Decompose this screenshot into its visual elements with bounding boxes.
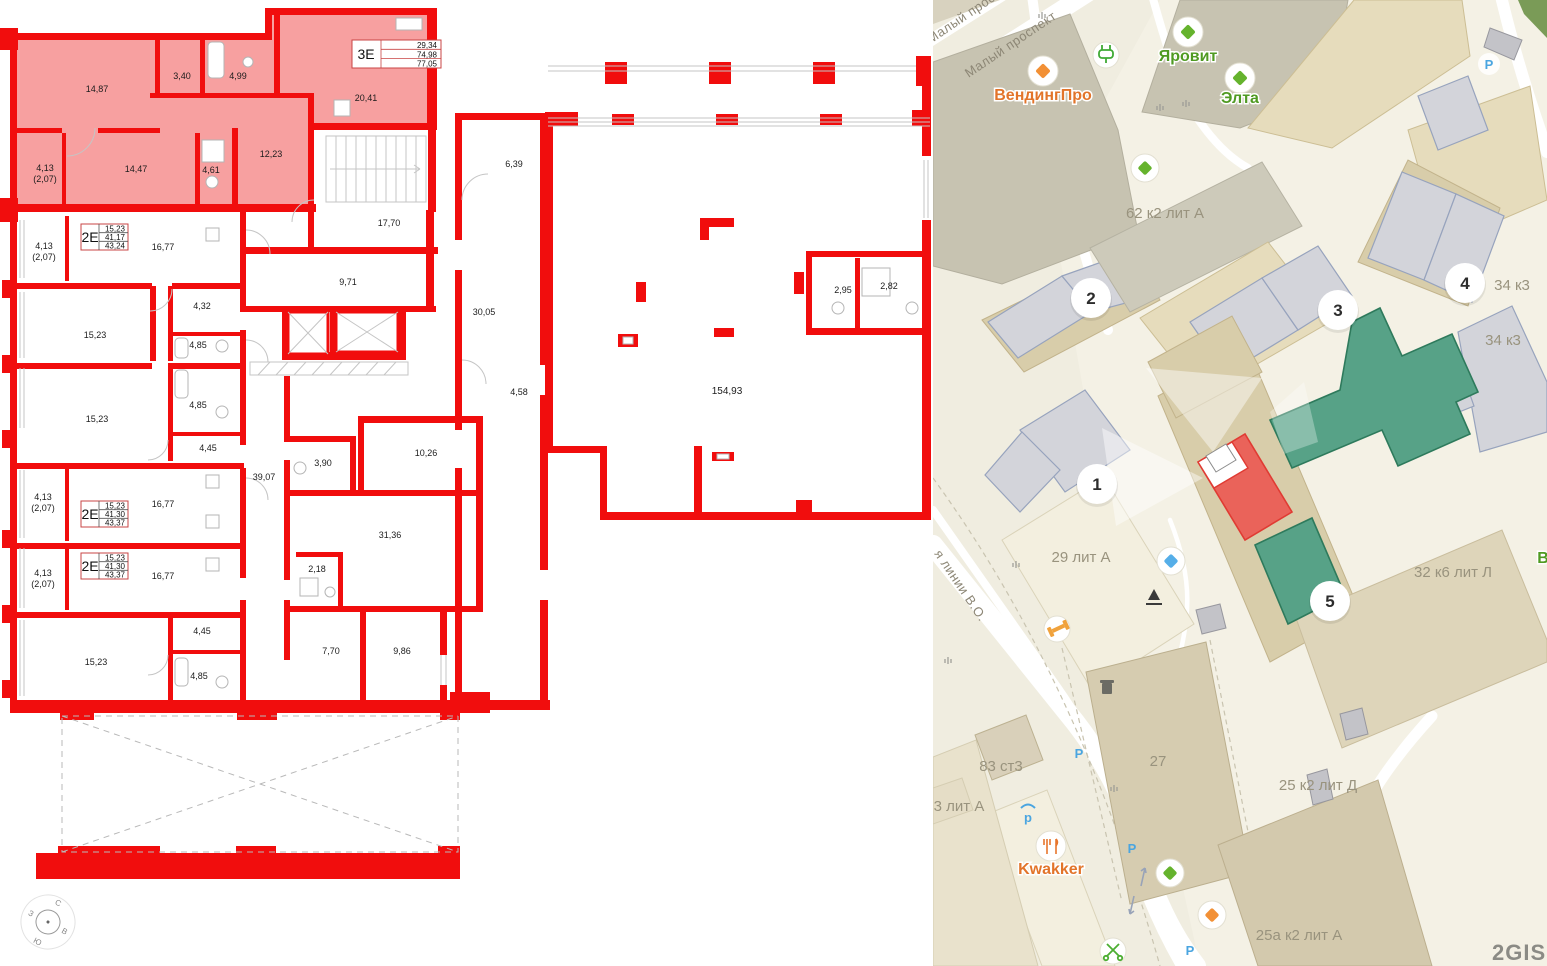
unit-area-value: 74,98 (417, 50, 438, 59)
room-area-label: 4,45 (193, 626, 211, 636)
room-area-label: 9,71 (339, 277, 357, 287)
poi-yarovit[interactable] (1173, 17, 1203, 47)
poi-scissors[interactable] (1100, 938, 1126, 964)
map-marker-3[interactable]: 3 (1317, 290, 1359, 333)
room-area-label: 2,82 (880, 281, 898, 291)
building-label: 3 лит А (934, 798, 985, 815)
building-label: 25 к2 лит Д (1279, 777, 1357, 794)
building-label: 34 к3 (1485, 332, 1521, 349)
room-area-label: 16,77 (152, 242, 175, 252)
unit-area-value: 29,34 (417, 41, 438, 50)
room-area-label: 4,99 (229, 71, 247, 81)
parking-icon[interactable]: Р (1128, 841, 1137, 856)
building-label: 27 (1150, 753, 1167, 770)
room-area-label: 4,32 (193, 301, 211, 311)
marker-number: 3 (1333, 301, 1342, 320)
covered-parking-letter: p (1024, 810, 1032, 825)
building-label: 62 к2 лит А (1126, 205, 1204, 222)
marker-number: 4 (1460, 274, 1470, 293)
unit-type-label: 2Е (81, 506, 98, 522)
unit-area-value: 77,05 (417, 60, 438, 69)
marker-number: 1 (1092, 475, 1101, 494)
floorplan-map-viewer: 14,87 3,40 4,99 20,41 4,13 (2,07) 14,47 … (0, 0, 1547, 966)
building-label: 32 к6 лит Л (1414, 564, 1492, 581)
map-panel[interactable]: p Р Р Р Р (933, 0, 1547, 966)
unit-type-label: 2Е (81, 558, 98, 574)
poi-fitness[interactable] (1044, 616, 1070, 642)
parking-icon[interactable]: Р (1186, 943, 1195, 958)
room-area-label: (2,07) (31, 503, 55, 513)
unit-area-value: 43,24 (105, 242, 126, 251)
room-area-label: (2,07) (31, 579, 55, 589)
room-area-label: 4,13 (35, 241, 53, 251)
map-marker-4[interactable]: 4 (1444, 263, 1486, 306)
poi-vendingpro[interactable] (1028, 56, 1058, 86)
unit-area-value: 43,37 (105, 519, 126, 528)
building-label: 25а к2 лит А (1256, 927, 1342, 944)
map-marker-5[interactable]: 5 (1309, 581, 1351, 624)
building-shed (1196, 604, 1226, 634)
room-area-label: 4,61 (202, 165, 220, 175)
unit-info-box-2e-1[interactable]: 2Е 15,23 41,17 43,24 (81, 224, 128, 251)
poi-blue[interactable] (1157, 547, 1185, 575)
building-label: 29 лит А (1051, 549, 1110, 566)
room-area-label: 16,77 (152, 571, 175, 581)
room-area-label: 14,87 (86, 84, 109, 94)
parking-icon[interactable]: Р (1485, 57, 1494, 72)
unit-type-label: 2Е (81, 229, 98, 245)
room-area-label: 7,70 (322, 646, 340, 656)
room-area-label: (2,07) (32, 252, 56, 262)
room-area-label: 4,85 (189, 340, 207, 350)
room-area-label: 4,13 (34, 492, 52, 502)
room-area-label: 14,47 (125, 164, 148, 174)
poi-ev-charging[interactable] (1093, 42, 1119, 68)
room-area-label: 2,95 (834, 285, 852, 295)
room-area-label: 17,70 (378, 218, 401, 228)
room-area-label: 4,85 (190, 671, 208, 681)
unit-info-box-2e-3[interactable]: 2Е 15,23 41,30 43,37 (81, 553, 128, 580)
2gis-logo: 2GIS (1492, 940, 1546, 965)
poi-green-2[interactable] (1156, 859, 1184, 887)
marker-number: 2 (1086, 289, 1095, 308)
elevator-shafts (250, 312, 408, 375)
poi-label[interactable]: Яровит (1159, 48, 1218, 65)
room-area-label: 9,86 (393, 646, 411, 656)
building-label: 34 к3 (1494, 277, 1530, 294)
map-marker-2[interactable]: 2 (1070, 278, 1112, 321)
poi-restaurant[interactable] (1036, 831, 1066, 861)
parking-icon[interactable]: Р (1075, 746, 1084, 761)
poi-green[interactable] (1131, 154, 1159, 182)
room-area-label: 30,05 (473, 307, 496, 317)
unit-info-box-2e-2[interactable]: 2Е 15,23 41,30 43,37 (81, 501, 128, 528)
compass-rose: С В Ю З (11, 885, 84, 958)
room-area-label: 15,23 (85, 657, 108, 667)
poi-label[interactable]: Элта (1221, 90, 1259, 107)
poi-label[interactable]: ВендингПро (994, 87, 1092, 104)
room-area-label: 39,07 (253, 472, 276, 482)
terrace-outline (62, 716, 458, 852)
staircase (326, 136, 426, 202)
room-area-label: 12,23 (260, 149, 283, 159)
poi-label[interactable]: Kwakker (1018, 861, 1084, 878)
room-area-label: 4,58 (510, 387, 528, 397)
unit-area-value: 43,37 (105, 571, 126, 580)
room-area-label: 2,18 (308, 564, 326, 574)
room-area-label: 3,90 (314, 458, 332, 468)
room-area-label: 4,13 (36, 163, 54, 173)
room-area-label: 4,45 (199, 443, 217, 453)
poi-orange-2[interactable] (1198, 901, 1226, 929)
room-area-label: (2,07) (33, 174, 57, 184)
room-area-label: 16,77 (152, 499, 175, 509)
map-marker-1[interactable]: 1 (1076, 464, 1118, 507)
room-area-label: 6,39 (505, 159, 523, 169)
room-area-label: 4,85 (189, 400, 207, 410)
building-label: 83 ст3 (979, 758, 1023, 775)
unit-info-box-3e[interactable]: 3Е 29,34 74,98 77,05 (352, 40, 441, 69)
marker-number: 5 (1325, 592, 1334, 611)
floor-plan-panel: 14,87 3,40 4,99 20,41 4,13 (2,07) 14,47 … (0, 0, 933, 966)
room-area-label: 15,23 (84, 330, 107, 340)
room-area-label: 31,36 (379, 530, 402, 540)
unit-type-label: 3Е (357, 46, 374, 62)
room-area-label: 4,13 (34, 568, 52, 578)
room-area-label: 3,40 (173, 71, 191, 81)
trash-icon (1100, 680, 1114, 694)
room-area-label: 15,23 (86, 414, 109, 424)
room-area-label: 20,41 (355, 93, 378, 103)
poi-label[interactable]: В (1537, 550, 1547, 567)
room-area-label: 10,26 (415, 448, 438, 458)
poi-elta[interactable] (1225, 63, 1255, 93)
room-area-label: 154,93 (712, 386, 743, 397)
